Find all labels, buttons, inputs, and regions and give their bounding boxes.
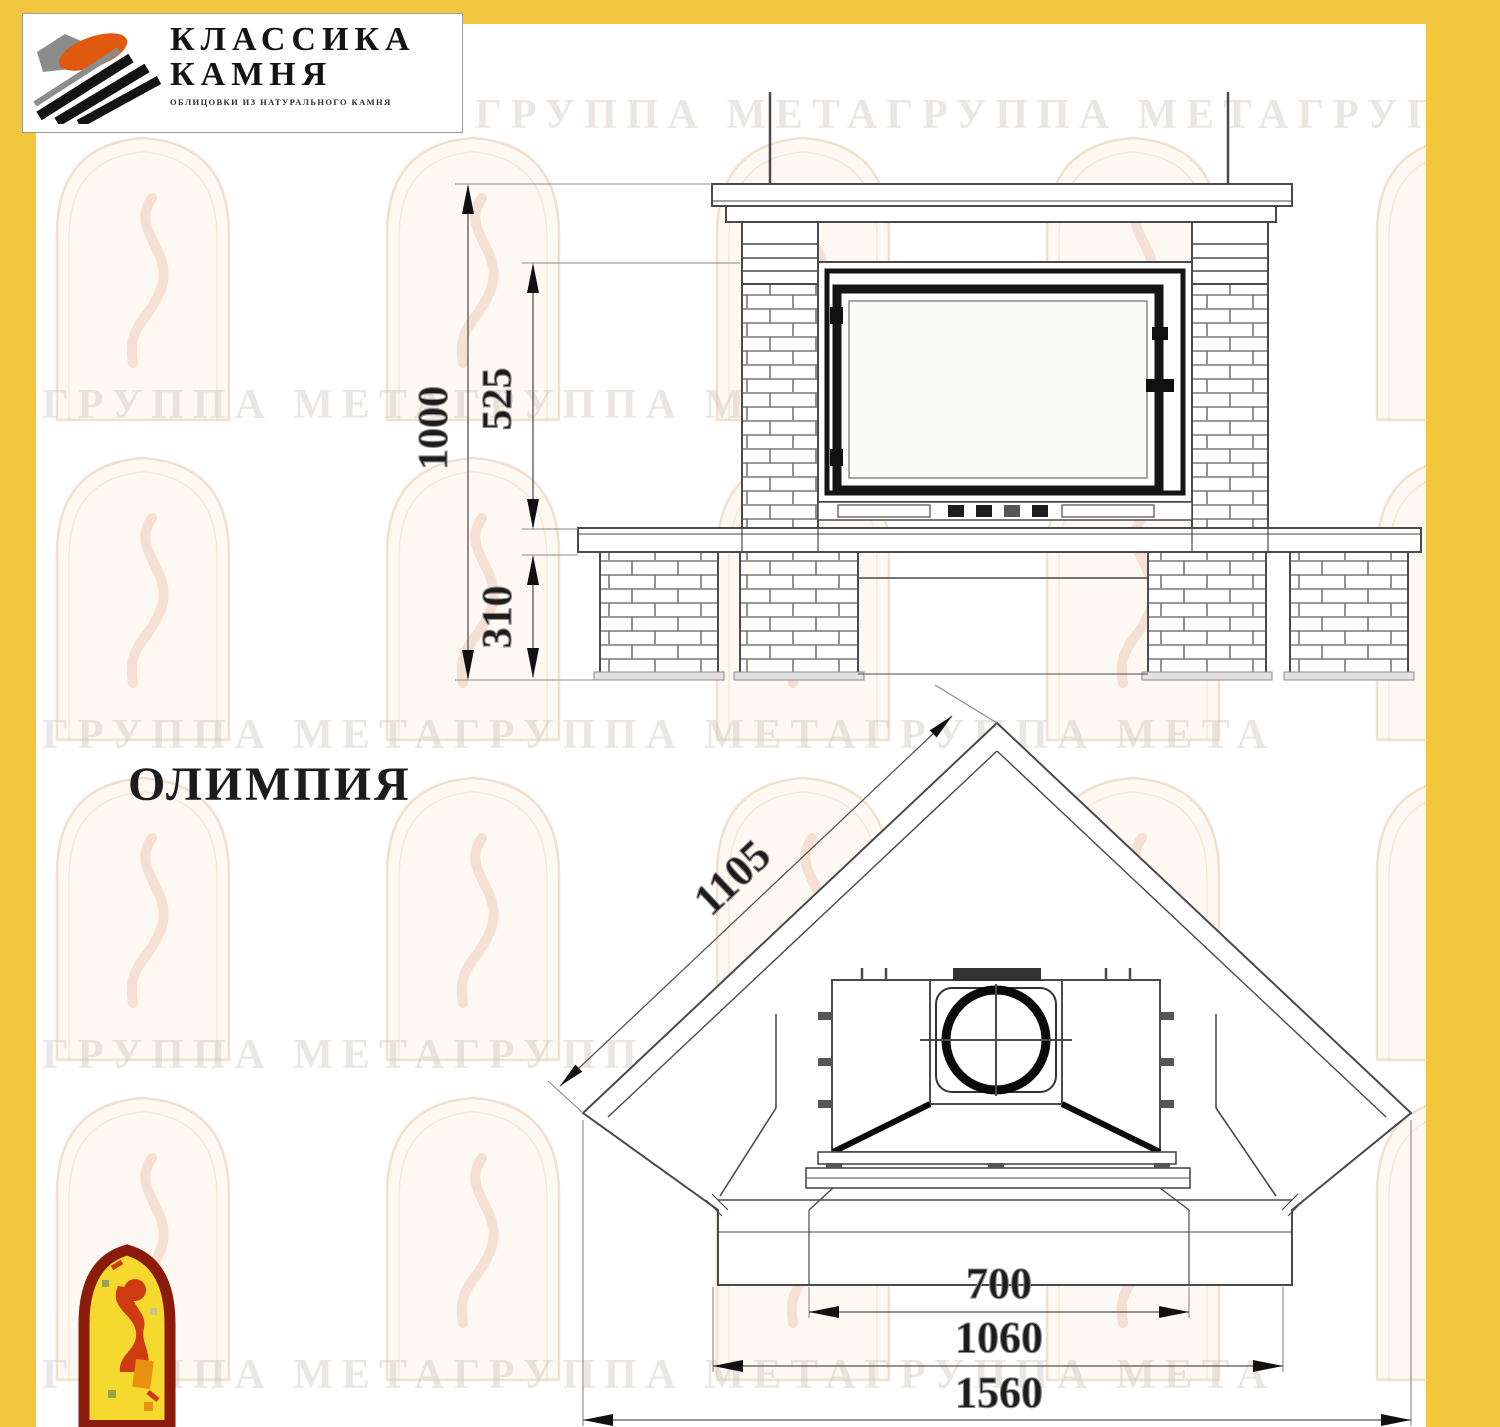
watermark-text-row: ГРУППА МЕТАГРУППА МЕТАГРУППА МЕТА [42, 1352, 1276, 1398]
brand-logo-box: КЛАССИКА КАМНЯ ОБЛИЦОВКИ ИЗ НАТУРАЛЬНОГО… [22, 13, 463, 133]
vent-strip [818, 502, 1192, 520]
door-hinge-bottom [830, 449, 843, 466]
model-title: ОЛИМПИЯ [128, 758, 412, 811]
right-column [1192, 222, 1268, 530]
dim-total-height: 1000 [411, 386, 457, 470]
spec-sheet: ГРУППА МЕТАГРУППА МЕТАГРУППА МЕТА ГРУППА… [0, 0, 1500, 1427]
dim-total-width: 1560 [955, 1368, 1043, 1417]
left-column [742, 222, 818, 530]
plan-view-drawing [583, 723, 1411, 1285]
watermark-text-row: ГРУППА МЕТАГРУППА МЕТАГРУППА МЕТА [475, 92, 1500, 138]
drawing-canvas: ГРУППА МЕТАГРУППА МЕТАГРУППА МЕТА ГРУППА… [0, 0, 1500, 1427]
watermark-text-row: ГРУППА МЕТАГРУППА МЕТАГРУППА МЕТА [42, 712, 1276, 758]
firebox-door [818, 262, 1192, 502]
dim-base-height: 310 [475, 586, 521, 649]
brand-name-line1: КЛАССИКА [170, 22, 416, 58]
emblem-arch-figure [84, 1250, 170, 1427]
door-hinge-top [830, 307, 843, 324]
brand-logo-mark [31, 24, 166, 124]
damper-handle [953, 968, 1041, 981]
base-piers [594, 552, 1414, 680]
door-handle [1146, 379, 1174, 392]
door-latch [1152, 327, 1168, 340]
dim-front-width: 1060 [955, 1313, 1043, 1362]
bench-shelf [578, 528, 1421, 552]
brand-name-line2: КАМНЯ [170, 58, 416, 92]
brand-tagline: ОБЛИЦОВКИ ИЗ НАТУРАЛЬНОГО КАМНЯ [170, 97, 416, 107]
firebox-insert-plan [818, 968, 1174, 1152]
dim-opening-width: 700 [966, 1259, 1032, 1308]
dim-opening-height: 525 [475, 368, 521, 431]
